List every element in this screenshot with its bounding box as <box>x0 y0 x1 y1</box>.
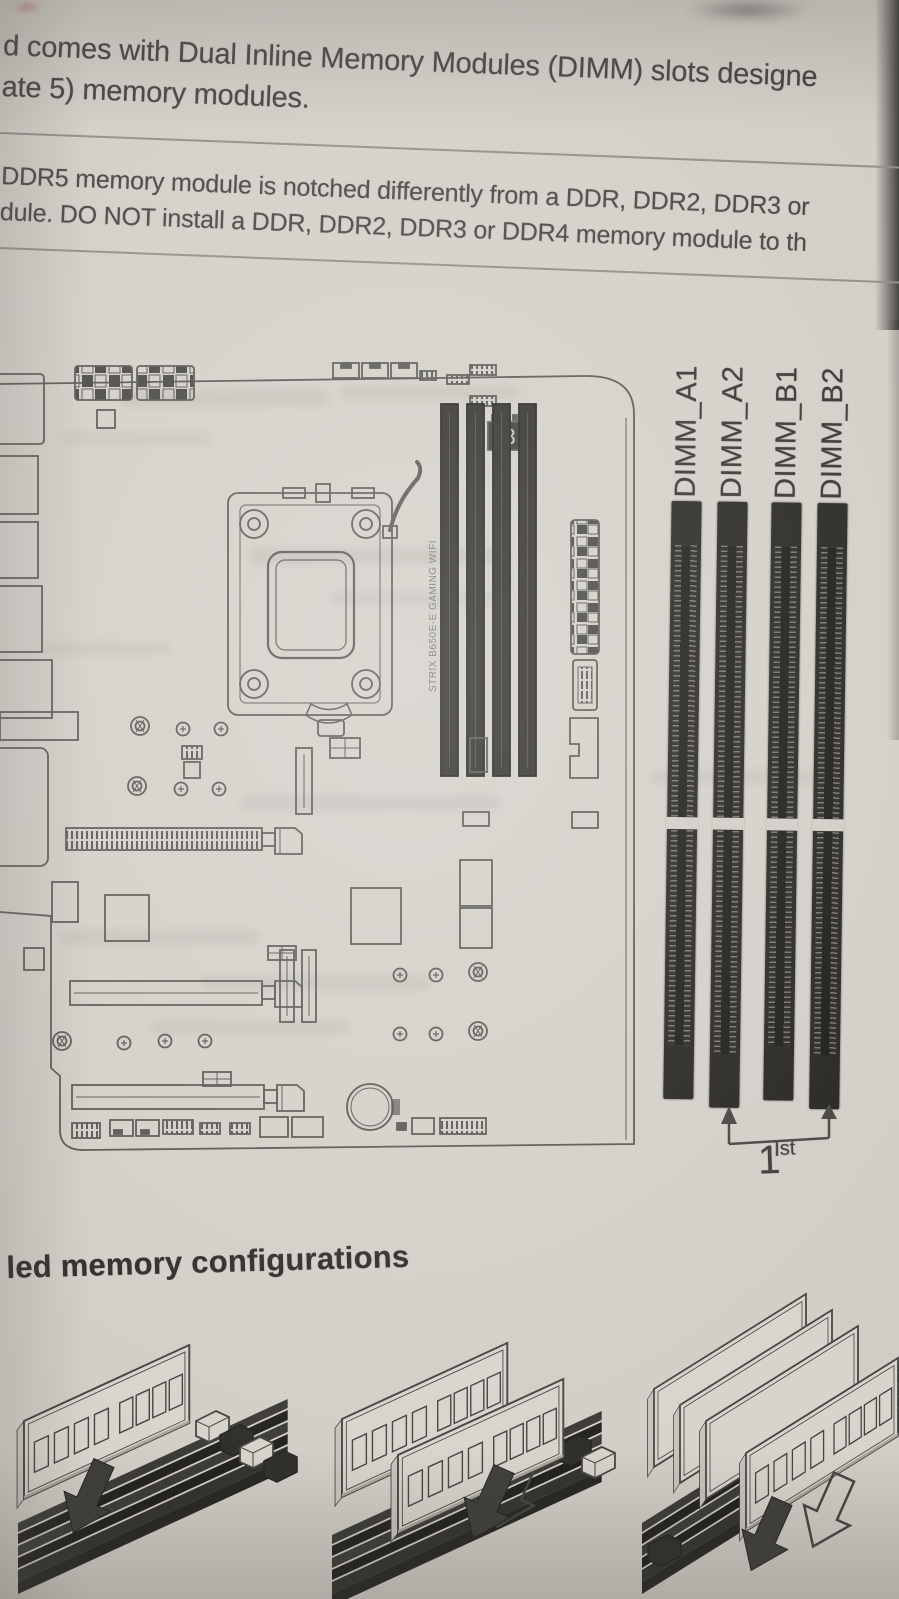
slot-notch <box>766 818 798 830</box>
board-outline <box>0 376 634 1150</box>
slot-notch <box>666 817 698 829</box>
screw-posts <box>53 717 487 1050</box>
fan-headers <box>333 363 496 406</box>
memory-config-illustrations <box>0 1285 899 1599</box>
dimm-label-a2: DIMM_A2 <box>716 306 753 498</box>
intro-text: d comes with Dual Inline Memory Modules … <box>1 26 899 145</box>
dimm-slot-b2 <box>809 503 847 1109</box>
dimm-label-b2: DIMM_B2 <box>816 307 853 499</box>
dimm-slot-callout: DIMM_A1 DIMM_A2 DIMM_B1 DIMM_B2 <box>630 305 863 1218</box>
slot-notch <box>712 818 744 830</box>
priority-label: 1st <box>757 1137 796 1183</box>
cpu-socket <box>228 462 420 736</box>
dimm-slot-b1 <box>763 502 801 1100</box>
eps-power-connector <box>75 366 194 428</box>
dimm-label-b1: DIMM_B1 <box>770 306 807 498</box>
socket-lever <box>390 462 420 530</box>
motherboard-diagram: 88 STRIX B650E-E GAMING WIFI <box>0 360 645 1155</box>
dimm-slots-onboard <box>441 404 536 776</box>
section-heading: led memory configurations <box>6 1239 410 1286</box>
jumper-headers <box>203 738 360 1086</box>
shadow-smudge <box>688 0 808 20</box>
io-ports <box>0 374 78 970</box>
red-smudge <box>12 0 42 14</box>
note-text: DDR5 memory module is notched differentl… <box>0 158 899 268</box>
up-arrow-icon <box>821 1104 837 1119</box>
slot-notch <box>812 819 844 831</box>
chipset <box>351 888 401 944</box>
chipset <box>105 895 149 941</box>
cmos-battery <box>347 1084 400 1130</box>
priority-bracket <box>636 1104 856 1166</box>
dimm-label-a1: DIMM_A1 <box>670 305 707 497</box>
dimm-slot-a2 <box>709 502 747 1108</box>
manual-page-photo: d comes with Dual Inline Memory Modules … <box>0 0 899 1599</box>
page-edge-shadow <box>887 320 899 740</box>
pcie-slots <box>66 828 304 1111</box>
memory-config-illustration-1 <box>17 1345 297 1594</box>
bottom-headers <box>72 1117 486 1138</box>
up-arrow-icon <box>721 1106 737 1124</box>
dimm-slot-a1 <box>663 501 701 1099</box>
board-name-text: STRIX B650E-E GAMING WIFI <box>428 540 439 692</box>
memory-config-illustration-2 <box>332 1343 615 1599</box>
memory-config-illustration-3 <box>642 1294 899 1594</box>
atx-power-connector <box>571 520 599 654</box>
